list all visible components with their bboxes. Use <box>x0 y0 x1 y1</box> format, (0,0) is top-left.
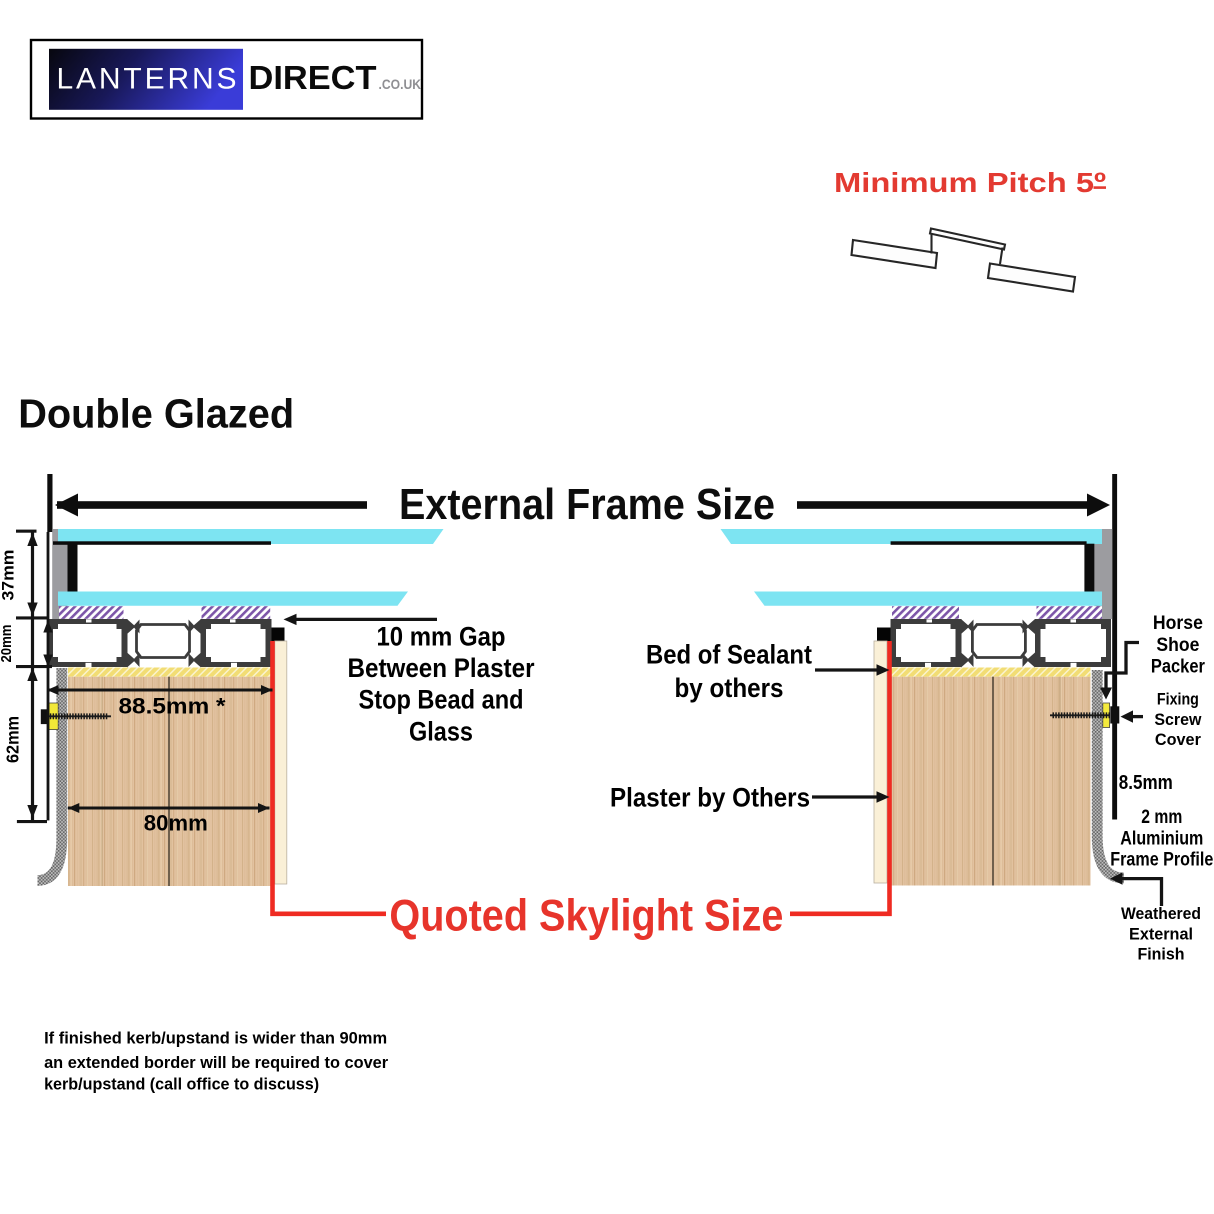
svg-text:If finished kerb/upstand is wi: If finished kerb/upstand is wider than 9… <box>44 1029 387 1048</box>
svg-text:Shoe: Shoe <box>1156 635 1199 656</box>
svg-text:External: External <box>1129 925 1193 943</box>
svg-text:Cover: Cover <box>1155 731 1202 749</box>
svg-text:Frame Profile: Frame Profile <box>1110 849 1213 871</box>
svg-text:80mm: 80mm <box>144 811 208 836</box>
svg-text:8.5mm: 8.5mm <box>1119 771 1173 794</box>
svg-text:Minimum Pitch 5º: Minimum Pitch 5º <box>834 167 1106 198</box>
svg-text:DIRECT: DIRECT <box>249 60 378 97</box>
svg-text:2 mm: 2 mm <box>1141 806 1182 828</box>
svg-text:Aluminium: Aluminium <box>1120 827 1203 849</box>
svg-text:kerb/upstand (call office to d: kerb/upstand (call office to discuss) <box>44 1075 319 1094</box>
svg-text:Packer: Packer <box>1151 657 1206 678</box>
svg-text:10 mm Gap: 10 mm Gap <box>377 621 506 651</box>
svg-text:Stop Bead and: Stop Bead and <box>359 685 524 715</box>
svg-text:Plaster by Others: Plaster by Others <box>610 783 810 813</box>
svg-text:by others: by others <box>675 673 784 703</box>
svg-text:Glass: Glass <box>409 717 473 747</box>
svg-text:External Frame Size: External Frame Size <box>399 480 775 529</box>
svg-text:88.5mm *: 88.5mm * <box>119 694 226 719</box>
svg-text:37mm: 37mm <box>0 550 18 601</box>
svg-text:an extended border will be req: an extended border will be required to c… <box>44 1053 388 1072</box>
svg-text:Bed of Sealant: Bed of Sealant <box>646 640 812 670</box>
svg-text:.CO.UK: .CO.UK <box>379 77 422 92</box>
svg-text:Fixing: Fixing <box>1157 691 1199 709</box>
svg-text:Horse: Horse <box>1153 613 1203 634</box>
svg-text:Screw: Screw <box>1154 711 1201 729</box>
svg-text:LANTERNS: LANTERNS <box>57 63 237 96</box>
svg-text:Between Plaster: Between Plaster <box>348 653 535 683</box>
svg-text:20mm: 20mm <box>0 625 15 663</box>
svg-text:Weathered: Weathered <box>1121 905 1201 923</box>
svg-text:62mm: 62mm <box>3 716 23 763</box>
svg-text:Finish: Finish <box>1138 946 1185 964</box>
svg-text:Double Glazed: Double Glazed <box>18 391 294 437</box>
svg-text:Quoted Skylight Size: Quoted Skylight Size <box>389 892 783 941</box>
